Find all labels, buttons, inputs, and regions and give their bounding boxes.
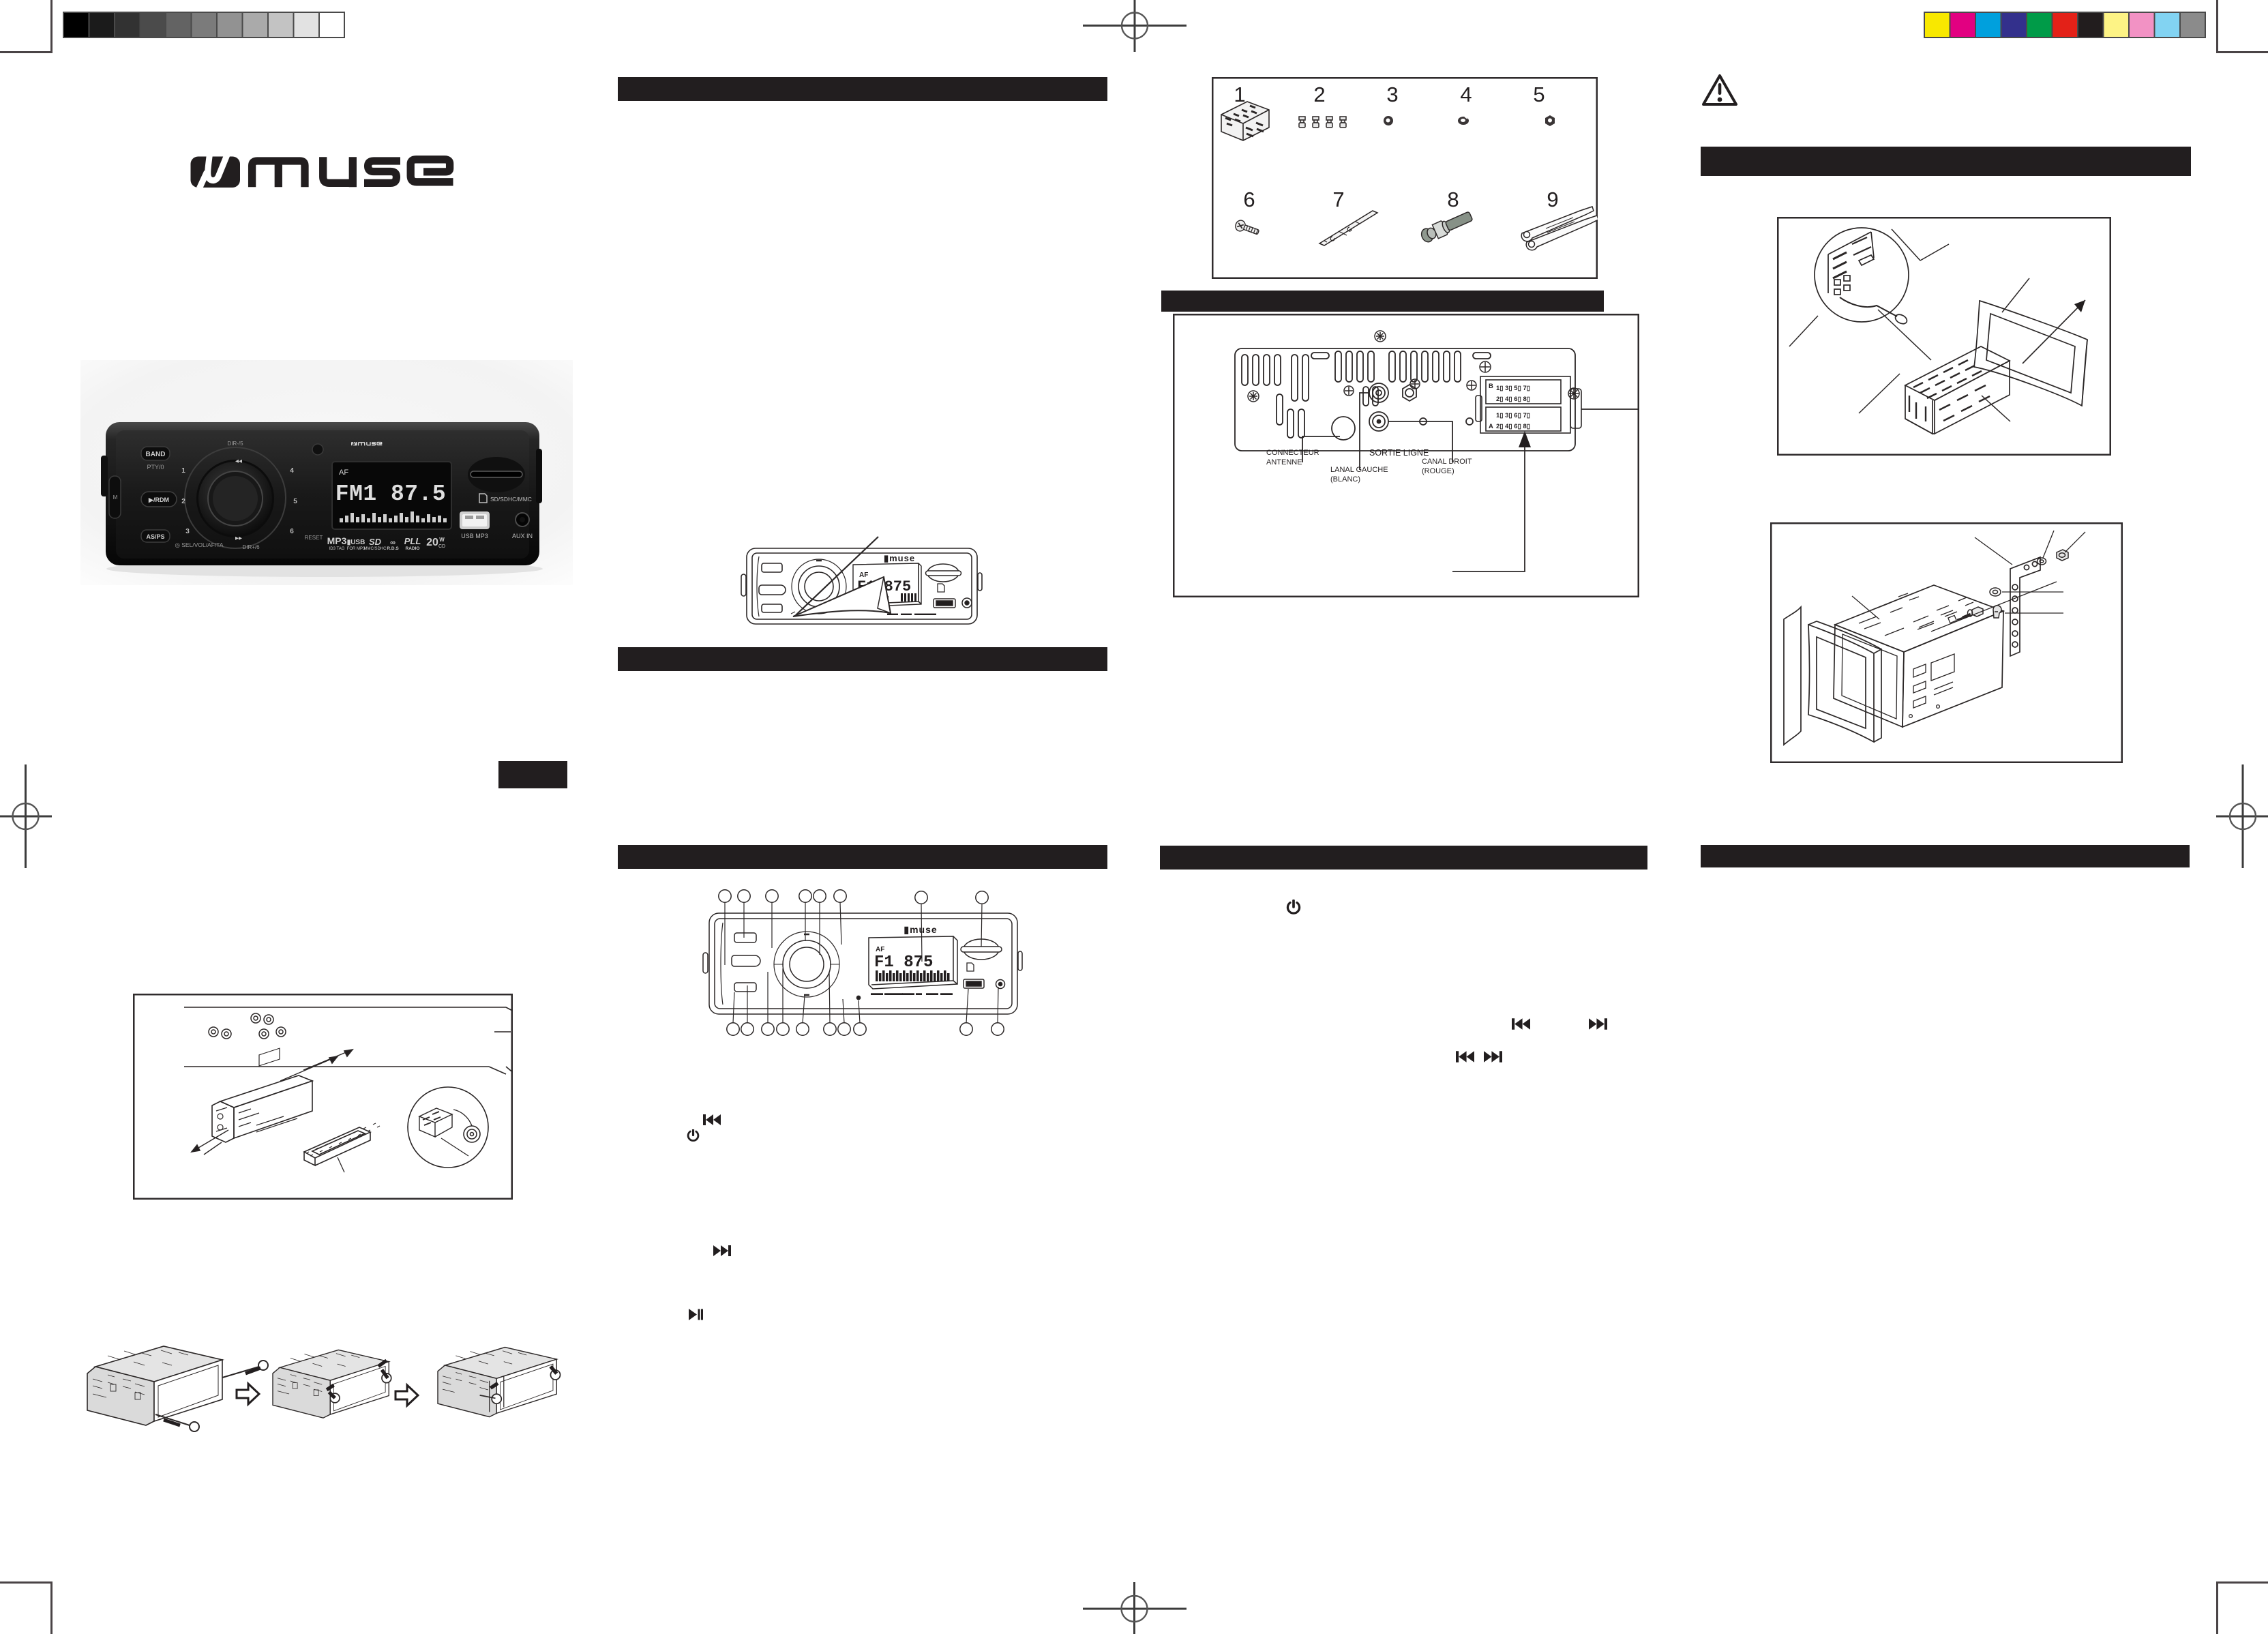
svg-text:▮USB: ▮USB xyxy=(347,539,365,546)
svg-text:▬▬: ▬▬ xyxy=(902,990,914,996)
svg-text:DIR+/6: DIR+/6 xyxy=(242,544,260,550)
svg-text:▬▬: ▬▬ xyxy=(901,610,912,617)
svg-text:7: 7 xyxy=(1332,188,1344,211)
svg-text:RESET: RESET xyxy=(305,535,323,541)
svg-text:B: B xyxy=(1489,383,1493,390)
svg-text:▬▬: ▬▬ xyxy=(914,610,925,617)
svg-text:A: A xyxy=(1489,423,1493,430)
svg-text:AS/PS: AS/PS xyxy=(146,533,164,540)
svg-text:▬: ▬ xyxy=(916,990,922,996)
svg-text:5: 5 xyxy=(1533,83,1545,106)
svg-text:6: 6 xyxy=(1243,188,1255,211)
svg-text:ANTENNE: ANTENNE xyxy=(1266,458,1302,466)
svg-text:AF: AF xyxy=(876,946,884,953)
svg-text:FM1 87.5: FM1 87.5 xyxy=(335,481,446,507)
svg-text:(ROUGE): (ROUGE) xyxy=(1422,467,1454,475)
svg-text:FOR MP3: FOR MP3 xyxy=(347,547,365,551)
svg-text:SD/SDHC/MMC: SD/SDHC/MMC xyxy=(490,496,532,503)
svg-text:2: 2 xyxy=(181,498,185,505)
svg-text:MMC/SDHC: MMC/SDHC xyxy=(364,547,387,551)
svg-text:1: 1 xyxy=(181,467,185,475)
svg-text:LANAL GAUCHE: LANAL GAUCHE xyxy=(1330,466,1388,474)
svg-text:SORTIE LIGNE: SORTIE LIGNE xyxy=(1369,448,1429,458)
svg-text:(BLANC): (BLANC) xyxy=(1330,475,1360,484)
svg-text:▮muse: ▮muse xyxy=(904,924,937,935)
svg-text:4: 4 xyxy=(1460,83,1472,106)
svg-text:AF: AF xyxy=(339,469,348,477)
svg-text:2▯ 4▯ 6▯ 8▯: 2▯ 4▯ 6▯ 8▯ xyxy=(1496,396,1530,403)
svg-text:MP3: MP3 xyxy=(327,535,347,546)
svg-text:SD: SD xyxy=(369,537,382,547)
svg-text:8: 8 xyxy=(1447,188,1459,211)
svg-text:▬▬: ▬▬ xyxy=(940,990,953,996)
svg-text:PLL: PLL xyxy=(404,536,421,546)
svg-text:BAND: BAND xyxy=(146,451,166,458)
svg-text:F1 875: F1 875 xyxy=(874,953,933,972)
svg-text:2: 2 xyxy=(1313,83,1325,106)
svg-text:9: 9 xyxy=(1547,188,1558,211)
svg-text:CANAL DROIT: CANAL DROIT xyxy=(1422,458,1472,466)
svg-text:R.D.S: R.D.S xyxy=(387,546,399,551)
svg-text:▬▬: ▬▬ xyxy=(871,990,883,996)
svg-text:4: 4 xyxy=(290,467,294,475)
svg-text:3: 3 xyxy=(1386,83,1398,106)
svg-text:20: 20 xyxy=(426,537,438,548)
svg-text:▬▬: ▬▬ xyxy=(926,990,938,996)
svg-text:PTY/0: PTY/0 xyxy=(147,464,164,471)
svg-text:AUX IN: AUX IN xyxy=(512,533,533,539)
svg-text:◎ SEL/VOL/AF/TA: ◎ SEL/VOL/AF/TA xyxy=(175,541,223,548)
svg-text:DIR-/5: DIR-/5 xyxy=(227,441,243,447)
svg-text:RADIO: RADIO xyxy=(406,546,420,551)
svg-text:▮muse: ▮muse xyxy=(884,553,915,563)
svg-text:M: M xyxy=(113,494,118,501)
svg-text:CD: CD xyxy=(438,544,445,549)
svg-text:◀◀: ◀◀ xyxy=(235,459,243,464)
svg-text:W: W xyxy=(439,537,445,543)
svg-text:▶/RDM: ▶/RDM xyxy=(148,496,169,503)
svg-text:5: 5 xyxy=(293,498,297,505)
svg-text:▬▬: ▬▬ xyxy=(925,610,936,617)
svg-text:USB MP3: USB MP3 xyxy=(461,533,488,539)
svg-text:6: 6 xyxy=(290,528,294,535)
svg-text:1▯ 3▯ 6▯ 7▯: 1▯ 3▯ 6▯ 7▯ xyxy=(1496,412,1530,419)
svg-text:CONNECTEUR: CONNECTEUR xyxy=(1266,449,1319,457)
svg-text:2▯ 4▯ 6▯ 8▯: 2▯ 4▯ 6▯ 8▯ xyxy=(1496,423,1530,430)
svg-text:▬▬▬: ▬▬▬ xyxy=(884,990,903,996)
svg-text:▶▶: ▶▶ xyxy=(235,536,243,541)
svg-text:1▯ 3▯ 5▯ 7▯: 1▯ 3▯ 5▯ 7▯ xyxy=(1496,385,1530,392)
svg-text:3: 3 xyxy=(185,528,190,535)
svg-text:ID3 TAG: ID3 TAG xyxy=(329,547,345,551)
